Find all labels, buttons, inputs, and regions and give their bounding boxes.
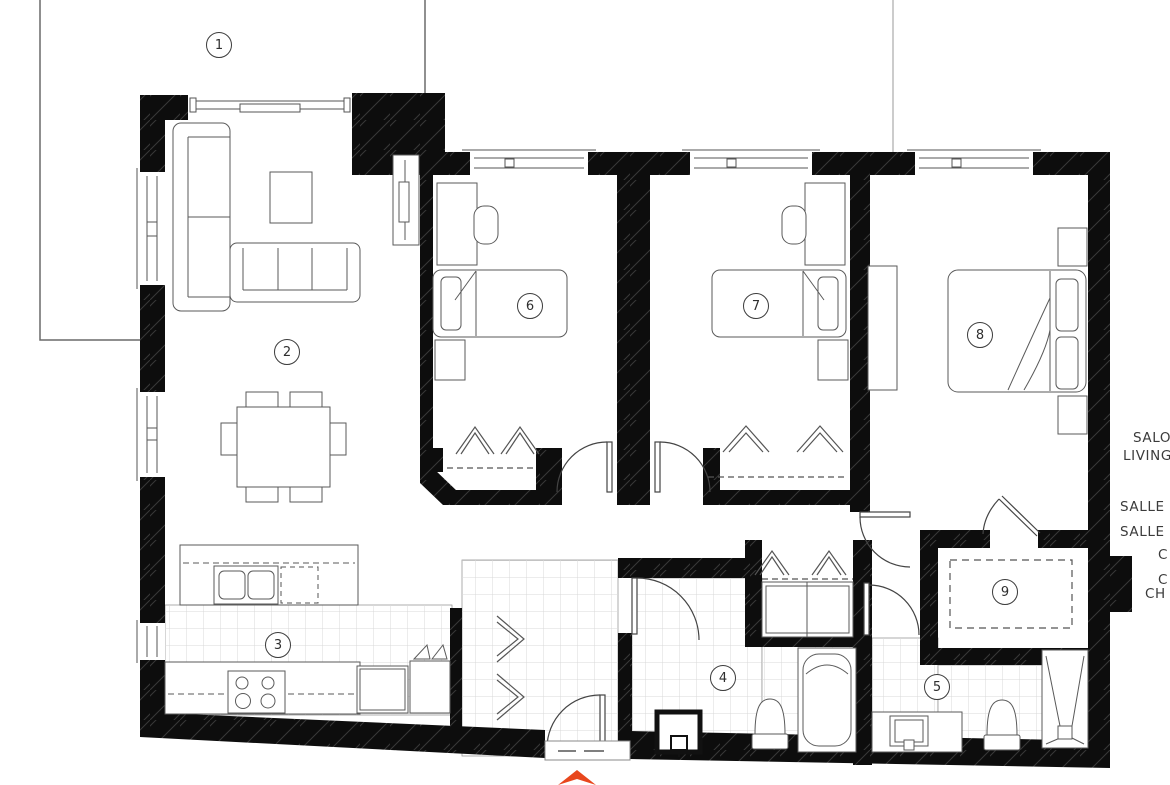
door-walk-in-closet <box>983 496 1040 536</box>
desk-2 <box>782 183 845 265</box>
closet-hanger-icon-bedroom-2 <box>708 426 848 477</box>
entrance-arrow-icon <box>558 770 596 785</box>
legend-living-room: LIVING R <box>1123 448 1170 464</box>
room-number-5: 5 <box>924 674 950 700</box>
door-bathroom-2 <box>864 583 919 635</box>
nightstand-3 <box>1058 228 1087 266</box>
entrance-threshold <box>545 741 630 760</box>
window-icon-living-left-2 <box>137 388 165 481</box>
room-number-6: 6 <box>517 293 543 319</box>
legend-salon: SALO <box>1133 430 1170 446</box>
coffee-table <box>270 172 312 223</box>
washing-machine <box>657 712 700 757</box>
closet-hanger-icon-bedroom-1 <box>447 427 539 468</box>
room-number-3: 3 <box>265 632 291 658</box>
legend-c-1: C <box>1158 547 1168 563</box>
nightstand <box>435 340 465 380</box>
room-number-4: 4 <box>710 665 736 691</box>
floor-plan: 1 2 3 4 5 6 7 8 9 SALO LIVING R SALLE SA… <box>0 0 1170 785</box>
room-number-1: 1 <box>206 32 232 58</box>
legend-salle-1: SALLE <box>1120 499 1165 515</box>
fridge <box>357 666 408 713</box>
stove <box>228 671 285 713</box>
room-number-2: 2 <box>274 339 300 365</box>
window-icon-bedroom-1 <box>462 150 596 175</box>
floor-plan-drawing <box>0 0 1170 785</box>
window-icon-kitchen <box>137 620 165 663</box>
door-bedroom-2 <box>655 442 710 492</box>
closet-hanger-icon-hall <box>755 551 853 579</box>
wardrobe <box>868 266 897 390</box>
window-icon-bedroom-2 <box>682 150 820 175</box>
bathtub <box>798 648 856 752</box>
bed-single-2 <box>712 270 846 337</box>
legend-salle-2: SALLE <box>1120 524 1165 540</box>
nightstand-2 <box>818 340 848 380</box>
kitchen-sink <box>214 566 278 604</box>
room-number-7: 7 <box>743 293 769 319</box>
sofa <box>230 243 360 302</box>
shower <box>1042 650 1088 748</box>
vanity-sink <box>872 712 962 752</box>
room-number-9: 9 <box>992 579 1018 605</box>
loveseat <box>173 123 230 311</box>
window-icon-living-left-1 <box>137 168 165 289</box>
tv-unit <box>393 155 419 245</box>
dining-table <box>221 392 346 502</box>
window-icon-living-top <box>188 95 352 120</box>
bed-single <box>433 270 567 337</box>
door-bedroom-1 <box>557 442 612 492</box>
room-number-8: 8 <box>967 322 993 348</box>
legend-chambre: CH <box>1145 586 1166 602</box>
desk <box>437 183 498 265</box>
hall-closet <box>762 582 853 637</box>
nightstand-4 <box>1058 396 1087 434</box>
window-icon-bedroom-3 <box>907 150 1041 175</box>
tile-floor-entry <box>462 560 618 756</box>
